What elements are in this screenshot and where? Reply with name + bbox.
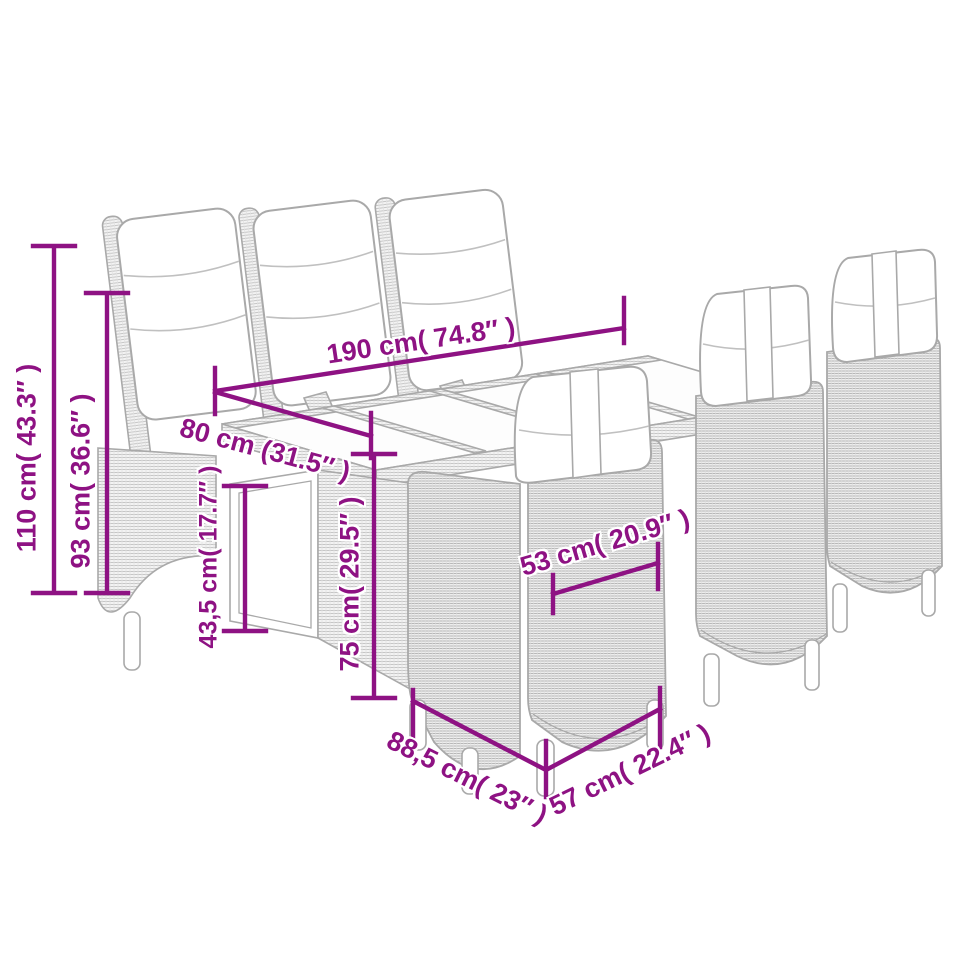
- dim-label-total-height: 110 cm( 43.3″ ): [14, 364, 41, 553]
- dimension-diagram: 110 cm( 43.3″ ) 93 cm( 36.6″ ) 190 cm( 7…: [0, 0, 955, 955]
- dim-label-shelf-height: 43,5 cm( 17.7″ ): [197, 466, 222, 649]
- dim-label-back-height: 93 cm( 36.6″ ): [68, 393, 95, 568]
- dimension-lines: [0, 0, 955, 955]
- dim-label-table-height: 75 cm( 29.5″ ): [337, 496, 364, 671]
- dim-line-table-length: [215, 298, 624, 414]
- dim-line-shelf-height: [224, 486, 266, 631]
